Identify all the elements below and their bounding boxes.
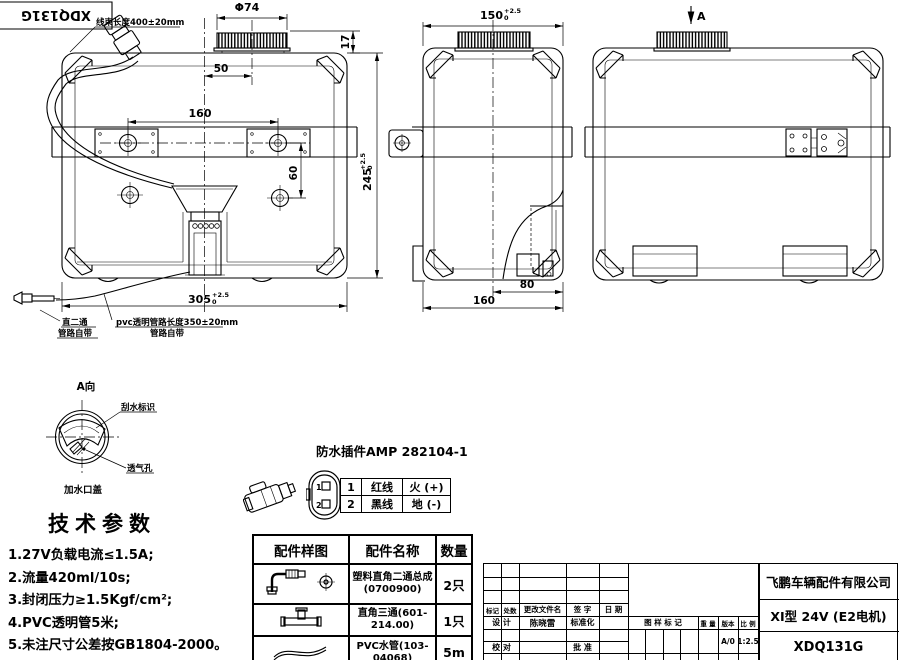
part-name: 塑料直角二通总成 [350,572,435,584]
svg-text:直二通: 直二通 [62,317,88,328]
svg-text:60: 60 [288,166,300,181]
tb-row-approve: 批 准 [566,641,599,653]
svg-text:Φ74: Φ74 [235,1,260,14]
tech-param-item: 4.PVC透明管5米; [8,613,253,636]
filler-cap [214,33,290,53]
svg-text:17: 17 [340,35,352,50]
part-sample [253,564,349,604]
tb-col-mark: 标记 [484,603,501,616]
dimension-cap-offset: 50 [205,63,253,76]
tb-company: 飞鹏车辆配件有限公司 [758,564,899,599]
svg-text:160: 160 [189,107,212,120]
pvc-tube [56,272,190,300]
svg-text:+2.5: +2.5 [359,153,367,170]
tb-col-count: 处数 [501,603,519,616]
part-code: (0700900) [350,584,435,596]
pump-assembly [172,186,237,275]
svg-text:pvc透明管路长度350±20mm: pvc透明管路长度350±20mm [116,317,238,328]
tb-version-label: 版本 [718,616,738,629]
svg-text:0: 0 [366,165,374,170]
tb-designer: 陈晓雷 [519,616,566,629]
pin-no: 1 [341,479,362,496]
tech-param-item: 2.流量420ml/10s; [8,568,253,591]
pin-wire: 红线 [362,479,403,496]
pin-no: 2 [341,496,362,513]
pvc-tube-icon [256,637,346,660]
internal-pump [503,190,563,279]
tb-weight-label: 重 量 [698,616,718,629]
filler-cap [654,32,730,51]
parts-row: 塑料直角二通总成 (0700900) 2只 [253,564,472,604]
tb-version: A/0 [718,629,738,653]
filler-cap-label: 加水口盖 [63,484,103,496]
straight-fitting-icon [14,292,60,304]
svg-text:+2.5: +2.5 [212,291,229,299]
connector-side-icon [243,462,305,526]
harness-length-label: 线束长度400±20mm [70,17,185,52]
svg-text:A: A [697,10,706,23]
svg-text:80: 80 [520,279,535,291]
harness-wire [55,61,174,184]
connector-title: 防水插件AMP 282104-1 [316,441,468,460]
tech-param-item: 1.27V负载电流≤1.5A; [8,545,253,568]
dimension-depth: 150 +2.5 0 [423,7,563,46]
tech-param-item: 3.封闭压力≥1.5Kgf/cm²; [8,590,253,613]
straight-fitting-label: 直二通 管路自带 [40,310,98,339]
svg-text:50: 50 [214,63,229,75]
pin-row: 1 红线 火 (+) [341,479,451,496]
tb-model: XI型 24V (E2电机) [758,599,899,631]
wiper-mark-label: 刮水标识 [96,402,157,428]
part-qty: 5m [436,636,472,660]
stamp-box: XDQ131G [0,2,112,29]
detail-a: A向 刮水标识 透气孔 加水口盖 [46,380,157,496]
engineering-drawing-sheet: XDQ131G [0,0,900,660]
svg-text:刮水标识: 刮水标识 [121,402,156,413]
col-sample: 配件样图 [253,535,349,564]
svg-text:0: 0 [212,298,217,306]
tb-col-doc: 更改文件名 [519,603,566,616]
svg-text:305: 305 [188,293,211,306]
tb-row-std: 标准化 [566,616,599,629]
parts-header-row: 配件样图 配件名称 数量 [253,535,472,564]
dimension-holes-horizontal: 160 [128,107,278,138]
part-sample [253,604,349,636]
view-a-marker: A [691,6,706,24]
stamp-code: XDQ131G [21,7,91,22]
parts-row: PVC水管(103-04068) 5m [253,636,472,660]
harness-wire [47,57,172,188]
front-view: Φ74 50 160 60 17 [14,1,383,339]
svg-text:160: 160 [473,295,495,307]
detail-a-title: A向 [77,380,96,393]
tb-col-sign: 签 字 [566,603,599,616]
strap-buckle [786,129,847,156]
part-qty: 1只 [436,604,472,636]
svg-text:管路自带: 管路自带 [58,328,93,339]
tb-scale-label: 比 例 [738,616,758,629]
pin-signal: 火 (+) [403,479,451,496]
tee-fitting-icon [256,605,346,631]
part-name: 直角三通(601-214.00) [349,604,436,636]
dimension-width: 305 +2.5 0 [62,282,347,312]
svg-text:管路自带: 管路自带 [150,328,185,339]
dimension-height: 245 +2.5 0 [347,53,383,278]
mounting-bracket [389,130,423,157]
col-qty: 数量 [436,535,472,564]
dimension-160: 160 [423,282,563,312]
part-sample [253,636,349,660]
elbow-fitting-icon [256,565,346,599]
tech-params: 技术参数 1.27V负载电流≤1.5A; 2.流量420ml/10s; 3.封闭… [8,508,253,658]
col-name: 配件名称 [349,535,436,564]
part-name: PVC水管(103-04068) [349,636,436,660]
svg-text:线束长度400±20mm: 线束长度400±20mm [96,17,185,28]
title-block: 标记 处数 更改文件名 签 字 日 期 设 计 陈晓雷 标准化 校 对 批 准 … [483,563,898,660]
dimension-80: 80 [493,279,563,296]
harness-connector-icon [103,14,145,62]
mounting-feet [633,246,847,283]
rear-view: A [585,6,890,283]
parts-row: 直角三通(601-214.00) 1只 [253,604,472,636]
tb-row-design: 设 计 [484,616,519,629]
face-pin-1: 1 [316,483,322,492]
svg-text:150: 150 [480,9,503,22]
parts-table: 配件样图 配件名称 数量 塑料直角二通总成 (0700900) [252,534,473,660]
face-pin-2: 2 [316,501,322,510]
dimension-holes-vertical: 60 [287,143,306,198]
dimension-cap-diameter: Φ74 [217,1,287,30]
svg-text:+2.5: +2.5 [504,7,521,15]
tb-row-check: 校 对 [484,641,519,653]
wiper-symbol [59,420,105,455]
side-view: 150 +2.5 0 80 160 [389,7,572,312]
pin-wire: 黑线 [362,496,403,513]
pin-table: 1 红线 火 (+) 2 黑线 地 (-) [340,478,451,513]
svg-text:0: 0 [504,14,509,22]
tb-drawing-no: XDQ131G [758,631,899,660]
filler-cap [455,32,533,51]
svg-text:透气孔: 透气孔 [127,463,153,474]
pvc-pipe-label: pvc透明管路长度350±20mm 管路自带 [104,294,238,339]
svg-text:245: 245 [361,168,374,191]
tech-param-item: 5.未注尺寸公差按GB1804-2000。 [8,635,253,658]
tb-drawing-mark: 图 样 标 记 [628,616,698,629]
tb-col-date: 日 期 [599,603,628,616]
part-qty: 2只 [436,564,472,604]
pin-row: 2 黑线 地 (-) [341,496,451,513]
vent-hole-label: 透气孔 [86,450,154,474]
tb-scale: 1:2.5 [738,629,758,653]
pin-signal: 地 (-) [403,496,451,513]
tech-params-title: 技术参数 [48,508,253,538]
dimension-cap-height: 17 [290,31,360,53]
